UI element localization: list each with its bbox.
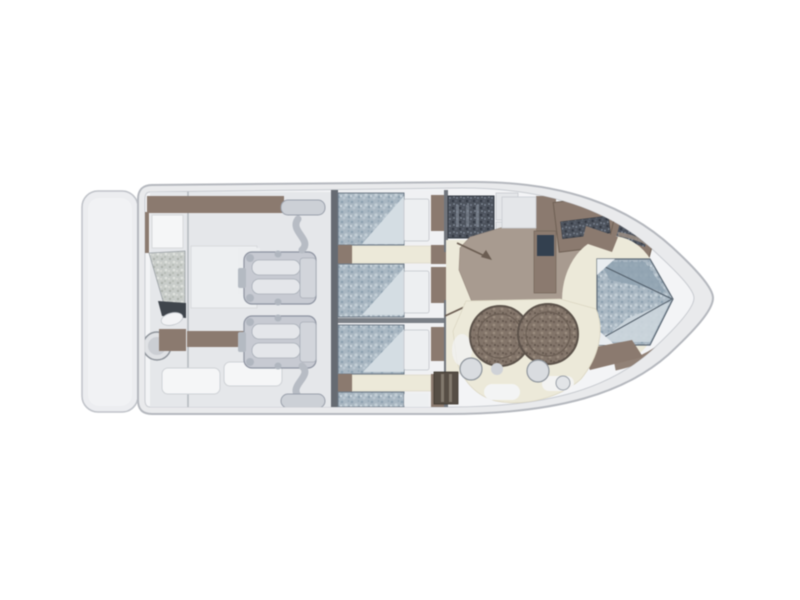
table-leg: [491, 363, 503, 375]
engine-port: [238, 251, 316, 306]
headboard: [431, 267, 448, 303]
dinette-table-right: [518, 304, 578, 364]
night-shelf: [352, 246, 431, 263]
muffler-port: [281, 200, 325, 215]
companionway-steps: [434, 372, 458, 404]
tv-screen: [537, 235, 554, 256]
shelf-cap: [338, 245, 352, 264]
pillow: [404, 271, 429, 313]
stern-bench-left: [162, 368, 220, 394]
seat-cushion: [152, 215, 183, 248]
pillow: [404, 199, 429, 241]
stool: [460, 358, 482, 380]
engine-starboard: [238, 315, 316, 370]
night-shelf: [352, 375, 431, 391]
screenshot-canvas: [0, 0, 800, 600]
berth: [338, 392, 404, 407]
yacht-floor-plan: [0, 0, 800, 600]
step-line: [441, 374, 444, 402]
cabin-divider: [338, 318, 448, 323]
bench-pad: [484, 384, 520, 400]
cockpit-locker: [159, 329, 186, 351]
fridge-unit: [502, 197, 536, 228]
pillow: [404, 393, 429, 407]
bulkhead-aft: [331, 190, 338, 408]
guest-cabin-port: [338, 193, 448, 317]
muffler-starboard: [281, 394, 325, 408]
step-line: [449, 374, 452, 402]
galley-cabinet: [536, 196, 556, 232]
transom-seat: [147, 196, 284, 213]
swim-platform-deck: [88, 198, 132, 406]
shelf-cap: [338, 374, 352, 392]
stool: [527, 360, 549, 382]
pillow: [404, 330, 429, 370]
stool-small: [556, 376, 570, 390]
